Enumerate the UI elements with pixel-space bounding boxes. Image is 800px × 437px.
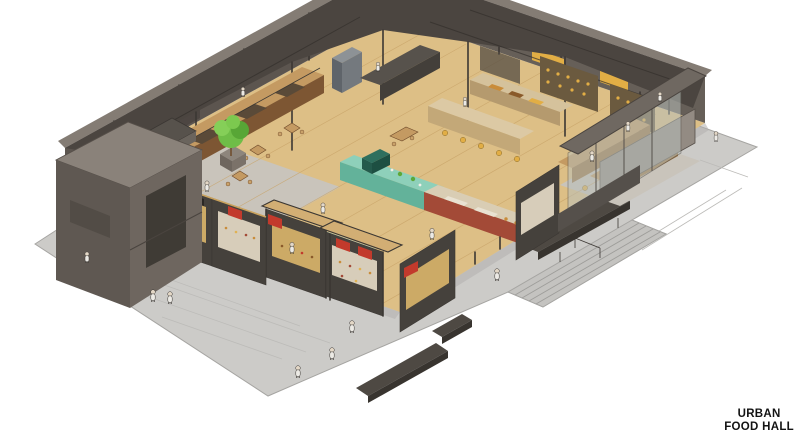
caption-line-1: URBAN bbox=[724, 408, 794, 421]
caption-line-2: FOOD HALL bbox=[724, 421, 794, 434]
caption: URBAN FOOD HALL bbox=[724, 408, 794, 434]
food-hall-illustration bbox=[0, 0, 800, 437]
illustration-canvas: URBAN FOOD HALL bbox=[0, 0, 800, 437]
